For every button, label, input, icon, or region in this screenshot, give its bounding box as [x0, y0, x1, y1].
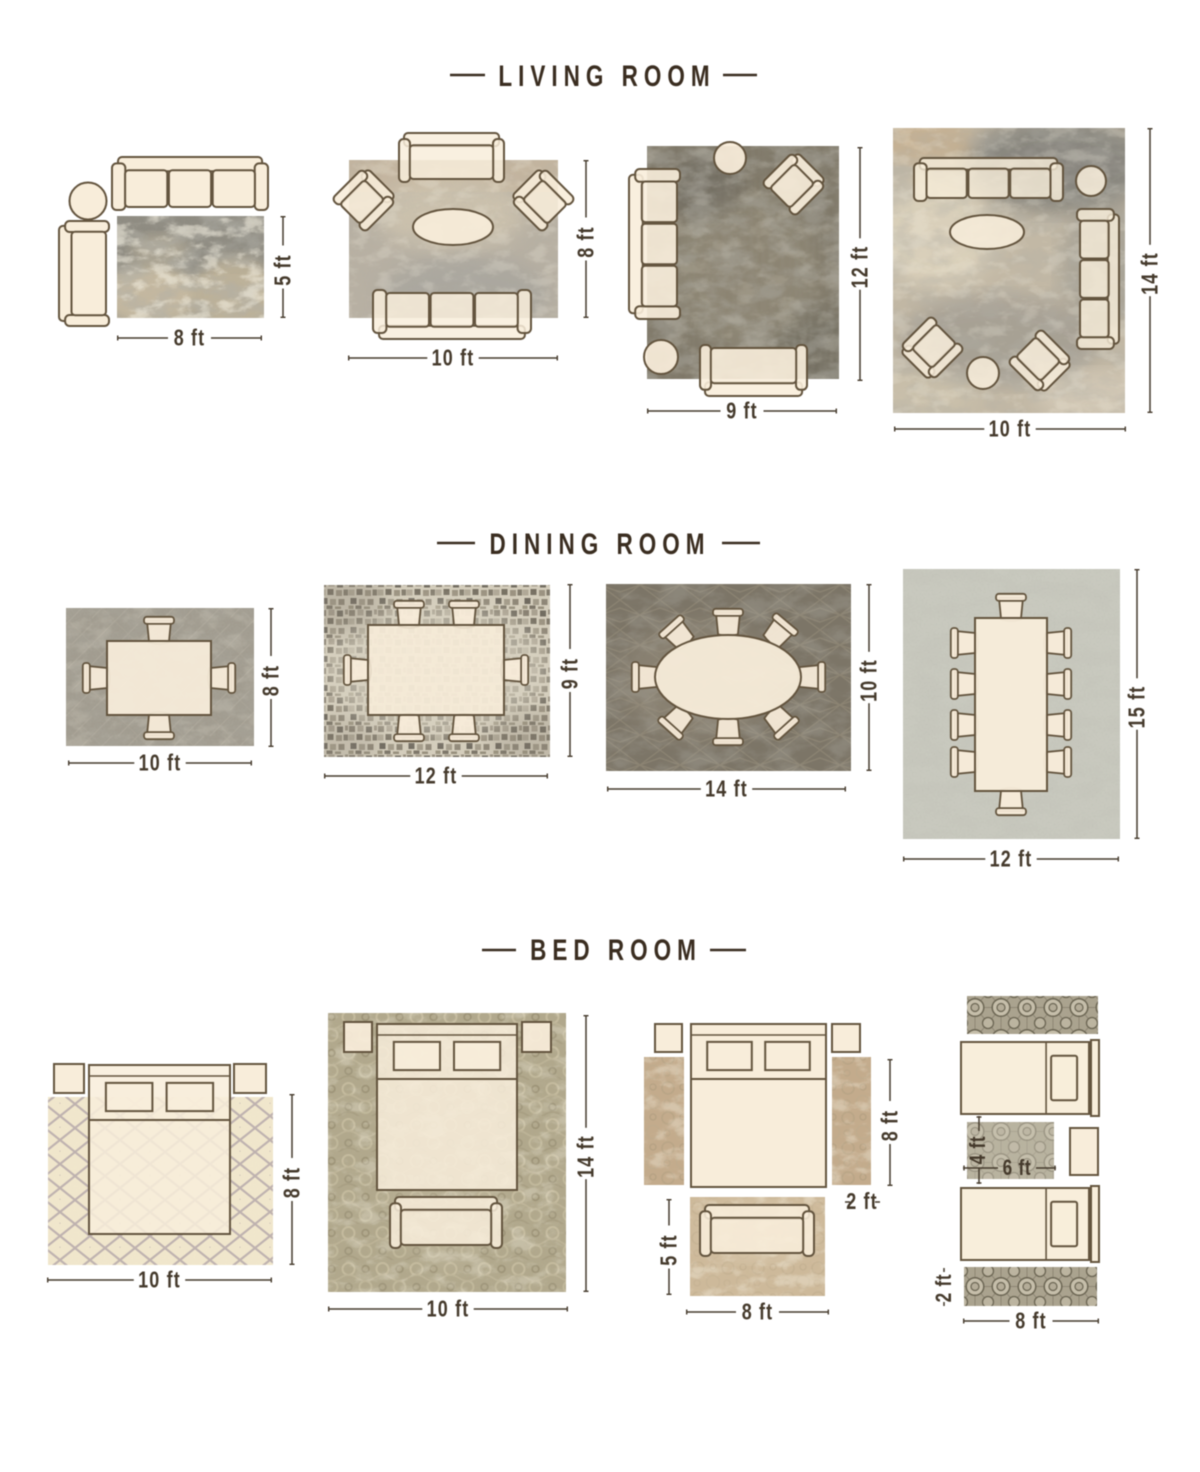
svg-text:10 ft: 10 ft [138, 1268, 181, 1294]
svg-text:14 ft: 14 ft [705, 777, 748, 803]
svg-text:9 ft: 9 ft [558, 658, 584, 690]
svg-text:10 ft: 10 ft [139, 751, 182, 777]
svg-text:8 ft: 8 ft [574, 226, 600, 258]
svg-text:6 ft: 6 ft [1003, 1156, 1032, 1181]
svg-text:10 ft: 10 ft [857, 659, 883, 702]
svg-text:8 ft: 8 ft [742, 1300, 774, 1326]
svg-text:8 ft: 8 ft [280, 1167, 306, 1199]
svg-text:DINING ROOM: DINING ROOM [490, 527, 711, 561]
svg-text:8 ft: 8 ft [174, 326, 206, 352]
svg-text:10 ft: 10 ft [989, 417, 1032, 443]
svg-text:14 ft: 14 ft [574, 1135, 600, 1178]
svg-text:5 ft: 5 ft [271, 254, 297, 286]
svg-text:8 ft: 8 ft [259, 665, 285, 697]
svg-text:10 ft: 10 ft [432, 346, 475, 372]
svg-text:12 ft: 12 ft [848, 246, 874, 289]
svg-text:4 ft: 4 ft [966, 1136, 991, 1165]
svg-text:8 ft: 8 ft [878, 1110, 904, 1142]
svg-text:5 ft: 5 ft [657, 1234, 683, 1266]
svg-text:12 ft: 12 ft [415, 764, 458, 790]
svg-text:15 ft: 15 ft [1125, 686, 1151, 729]
svg-text:2 ft: 2 ft [846, 1189, 878, 1215]
svg-text:10 ft: 10 ft [427, 1297, 470, 1323]
svg-text:2 ft: 2 ft [932, 1274, 957, 1303]
svg-text:BED ROOM: BED ROOM [530, 933, 702, 967]
svg-text:14 ft: 14 ft [1138, 252, 1164, 295]
svg-text:8 ft: 8 ft [1015, 1309, 1047, 1335]
svg-text:12 ft: 12 ft [990, 847, 1033, 873]
svg-text:LIVING ROOM: LIVING ROOM [498, 59, 715, 93]
svg-text:9 ft: 9 ft [726, 399, 758, 425]
